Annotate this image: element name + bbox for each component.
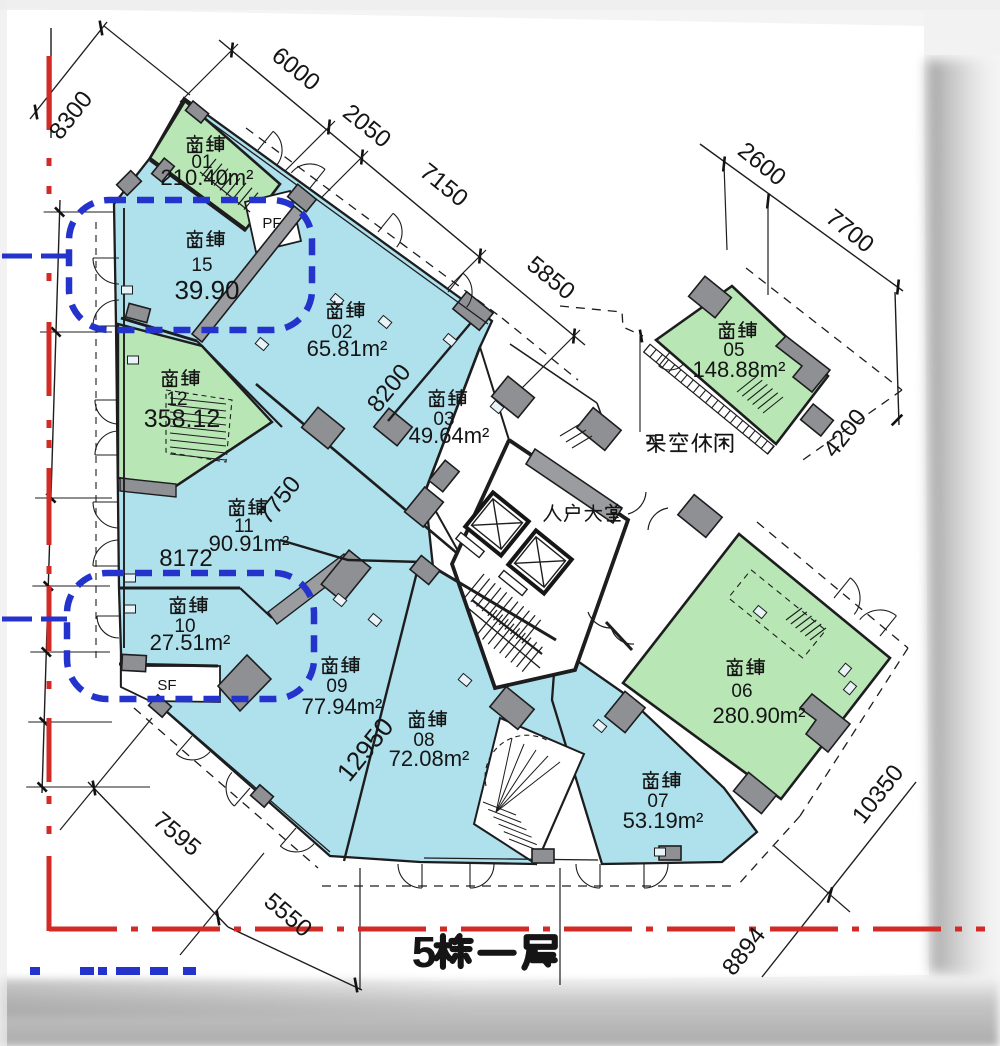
svg-text:39.90: 39.90 <box>174 275 239 305</box>
svg-text:148.88m²: 148.88m² <box>693 357 786 382</box>
svg-text:280.90m²: 280.90m² <box>713 703 806 728</box>
svg-text:65.81m²: 65.81m² <box>307 336 388 361</box>
svg-text:53.19m²: 53.19m² <box>623 808 704 833</box>
svg-text:8172: 8172 <box>159 545 212 572</box>
svg-text:90.91m²: 90.91m² <box>209 531 290 556</box>
svg-text:27.51m²: 27.51m² <box>150 630 231 655</box>
svg-text:15: 15 <box>191 255 212 276</box>
svg-text:5: 5 <box>412 928 436 977</box>
svg-text:72.08m²: 72.08m² <box>389 746 470 771</box>
svg-text:358.12: 358.12 <box>144 405 220 433</box>
svg-text:PF: PF <box>262 215 281 232</box>
svg-text:49.64m²: 49.64m² <box>409 423 490 448</box>
svg-text:77.94m²: 77.94m² <box>302 694 383 719</box>
svg-text:210.40m²: 210.40m² <box>161 165 254 190</box>
svg-text:SF: SF <box>157 677 176 694</box>
svg-text:06: 06 <box>731 681 752 702</box>
